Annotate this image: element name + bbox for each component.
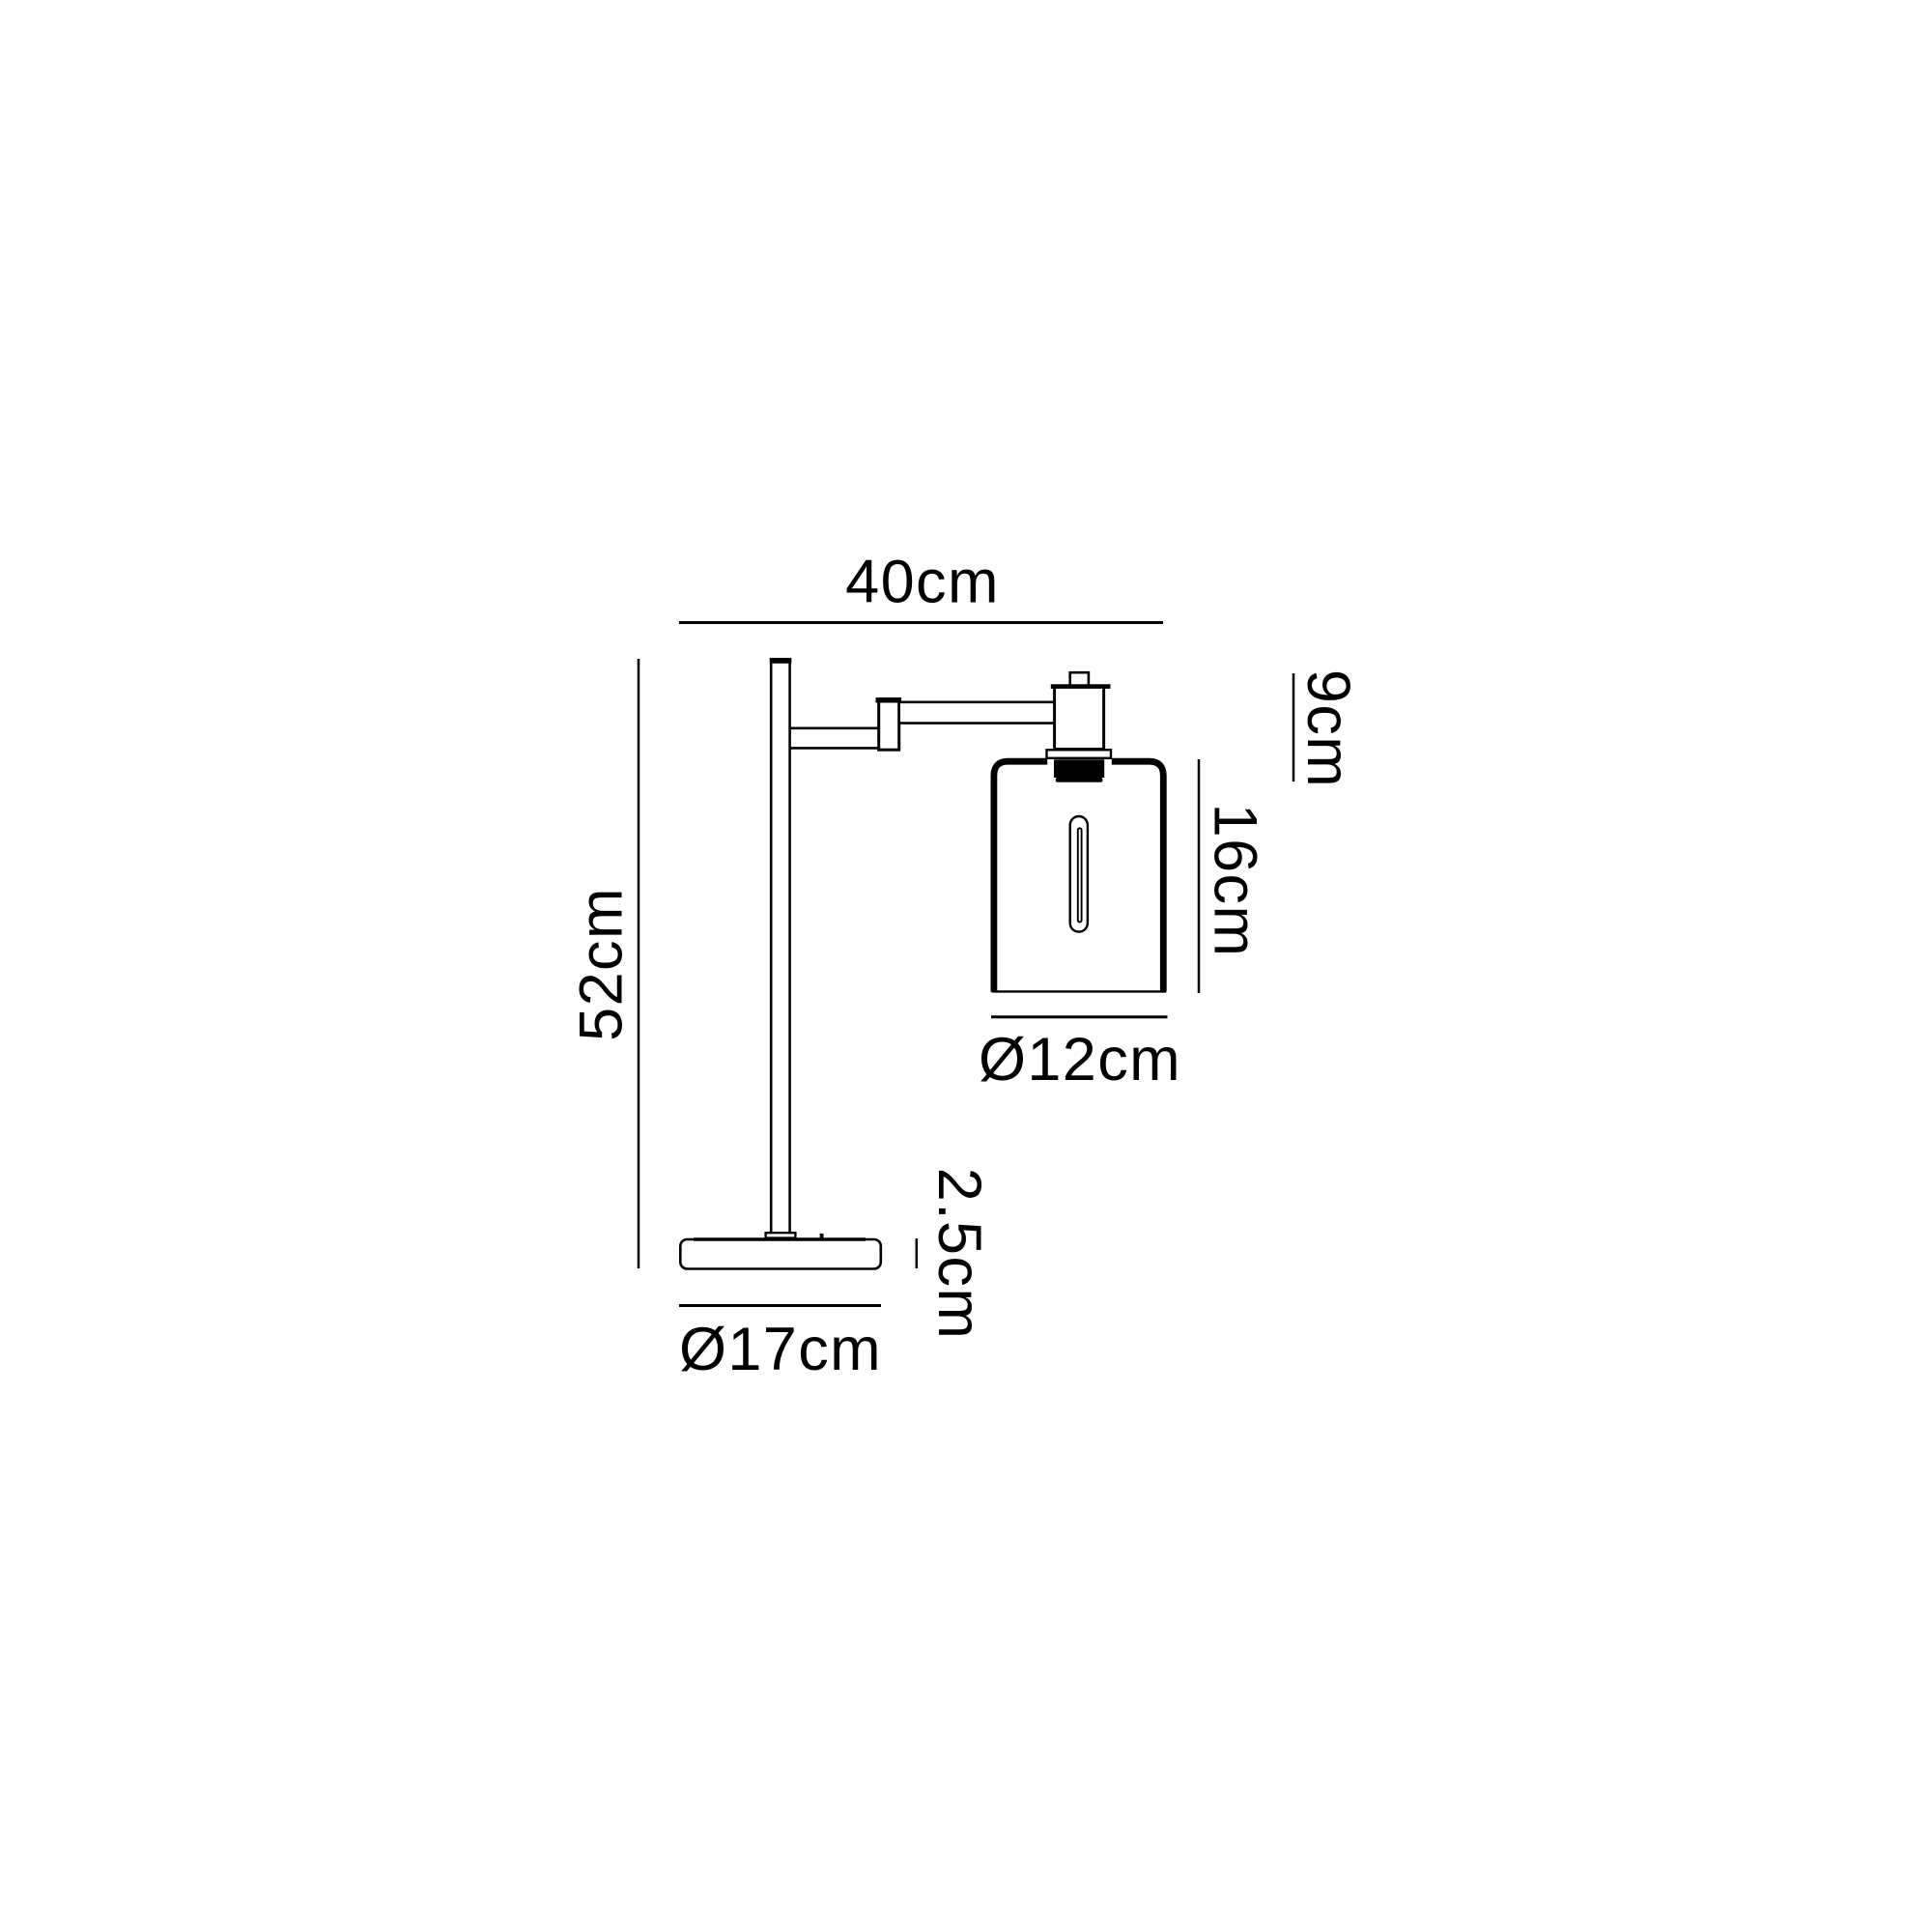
svg-text:9cm: 9cm [1294,669,1362,788]
svg-text:2.5cm: 2.5cm [925,1168,993,1341]
svg-text:40cm: 40cm [845,549,1000,616]
svg-text:Ø12cm: Ø12cm [979,1026,1181,1094]
svg-text:Ø17cm: Ø17cm [679,1316,882,1383]
svg-text:52cm: 52cm [568,887,636,1041]
svg-text:16cm: 16cm [1202,804,1269,958]
